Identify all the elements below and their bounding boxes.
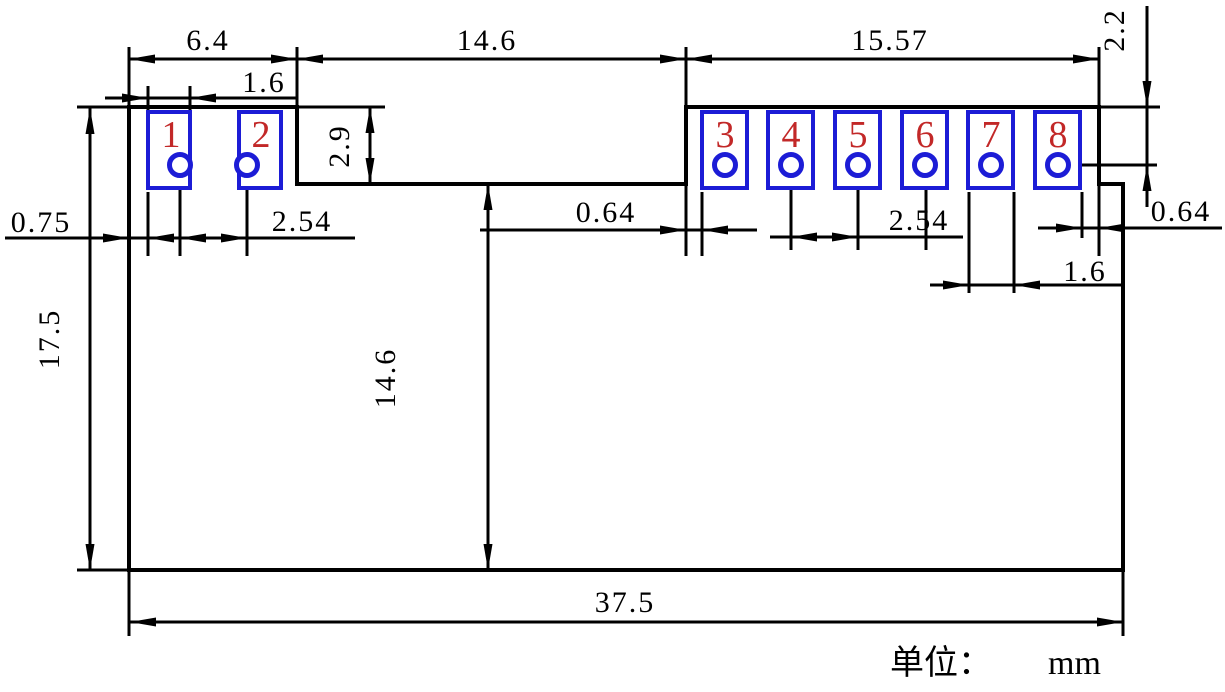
dim-label-17.5: 17.5 bbox=[33, 309, 66, 370]
pad-number: 5 bbox=[849, 114, 868, 156]
technical-drawing-page: 1 2 3 4 5 6 7 8 6.4 14.6 15.57 1.6 bbox=[0, 0, 1225, 692]
pad-6: 6 bbox=[902, 112, 947, 188]
pad-7: 7 bbox=[968, 112, 1013, 188]
dim-label-2.2: 2.2 bbox=[1098, 8, 1131, 52]
dim-label-0.64-left: 0.64 bbox=[576, 196, 637, 229]
pad-hole bbox=[781, 155, 802, 176]
pad-number: 8 bbox=[1049, 114, 1068, 156]
dim-label-37.5: 37.5 bbox=[595, 586, 656, 619]
dim-label-14.6-vertical: 14.6 bbox=[369, 348, 402, 409]
pad-3: 3 bbox=[702, 112, 747, 188]
pad-1: 1 bbox=[148, 112, 191, 188]
pad-hole bbox=[915, 155, 936, 176]
dim-label-0.64-right: 0.64 bbox=[1151, 195, 1212, 228]
pad-hole bbox=[170, 155, 191, 176]
dim-label-1.6-left: 1.6 bbox=[242, 66, 286, 99]
pad-number: 2 bbox=[252, 114, 271, 156]
dim-label-1.6-right: 1.6 bbox=[1063, 255, 1107, 288]
pad-8: 8 bbox=[1035, 112, 1080, 188]
pad-hole bbox=[848, 155, 869, 176]
extension-lines bbox=[77, 6, 1160, 636]
pad-number: 6 bbox=[916, 114, 935, 156]
footprint-dimension-drawing: 1 2 3 4 5 6 7 8 6.4 14.6 15.57 1.6 bbox=[0, 0, 1225, 692]
unit-note: 单位： mm bbox=[890, 644, 1101, 682]
dim-label-2.54-left: 2.54 bbox=[272, 205, 333, 238]
pad-number: 3 bbox=[716, 114, 735, 156]
dim-label-15.57: 15.57 bbox=[851, 24, 929, 57]
unit-note-value: mm bbox=[1048, 645, 1101, 682]
pad-number: 1 bbox=[162, 114, 181, 156]
pad-4: 4 bbox=[768, 112, 813, 188]
dim-label-14.6-top: 14.6 bbox=[457, 24, 518, 57]
dim-label-6.4: 6.4 bbox=[186, 24, 230, 57]
pad-2: 2 bbox=[237, 112, 282, 188]
pad-hole bbox=[237, 155, 258, 176]
dim-label-0.75: 0.75 bbox=[11, 206, 72, 239]
pad-hole bbox=[715, 155, 736, 176]
dim-label-2.9: 2.9 bbox=[323, 124, 356, 168]
pad-5: 5 bbox=[835, 112, 880, 188]
dim-label-2.54-right: 2.54 bbox=[889, 204, 950, 237]
unit-note-label: 单位： bbox=[890, 644, 992, 682]
pad-number: 4 bbox=[782, 114, 801, 156]
pad-number: 7 bbox=[982, 114, 1001, 156]
pad-hole bbox=[981, 155, 1002, 176]
pad-hole bbox=[1048, 155, 1069, 176]
